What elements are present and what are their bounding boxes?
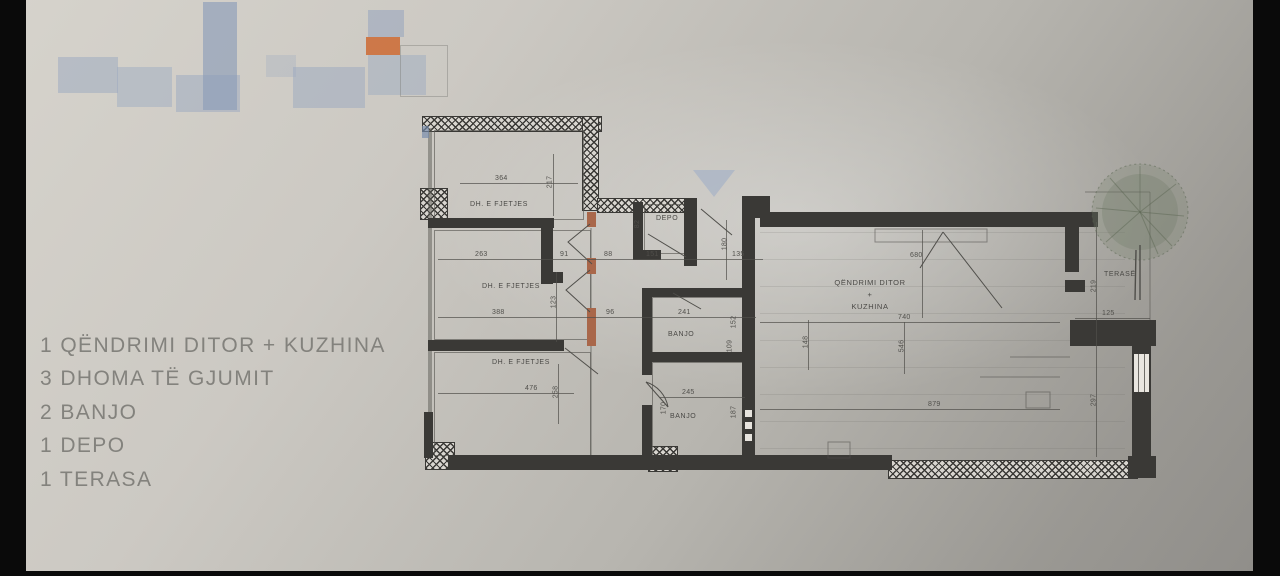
photo-right-edge bbox=[1253, 0, 1280, 576]
legend-item: 1 QËNDRIMI DITOR + KUZHINA bbox=[40, 329, 386, 362]
dim-label: 258 bbox=[552, 386, 560, 399]
room-label-bath1: BANJO bbox=[668, 330, 694, 339]
dimension-line bbox=[438, 259, 763, 260]
site-building-block bbox=[117, 67, 172, 107]
dim-label: 135 bbox=[732, 251, 745, 259]
room-label-bedroom1: DH. E FJETJES bbox=[470, 200, 528, 209]
dim-label: 546 bbox=[898, 340, 906, 353]
dim-label: 217 bbox=[546, 176, 554, 189]
dimension-line bbox=[760, 409, 1060, 410]
dim-label: 476 bbox=[525, 385, 538, 393]
dimension-line bbox=[460, 183, 578, 184]
site-building-block bbox=[293, 67, 365, 108]
dim-label: 82 bbox=[634, 220, 642, 228]
dim-label: 297 bbox=[1090, 394, 1098, 407]
room-label-depo: DEPO bbox=[656, 214, 678, 223]
site-highlighted-unit-orange bbox=[366, 37, 400, 55]
dim-label: 109 bbox=[726, 340, 734, 353]
dim-label: 123 bbox=[550, 296, 558, 309]
room-label-living: QËNDRIMI DITOR + KUZHINA bbox=[815, 277, 925, 313]
dim-label: 187 bbox=[730, 406, 738, 419]
site-tower-block bbox=[203, 2, 237, 110]
legend-item: 2 BANJO bbox=[40, 396, 386, 429]
doors-and-furniture-overlay bbox=[420, 112, 1168, 484]
site-building-block bbox=[266, 55, 296, 77]
dim-label: 148 bbox=[802, 336, 810, 349]
legend-item: 3 DHOMA TË GJUMIT bbox=[40, 362, 386, 395]
legend-item: 1 DEPO bbox=[40, 429, 386, 462]
dim-label: 170 bbox=[660, 402, 668, 415]
floor-plan: 364 217 263 91 88 151 135 82 180 388 123… bbox=[420, 112, 1168, 484]
dimension-line bbox=[1075, 318, 1150, 319]
room-label-bedroom2: DH. E FJETJES bbox=[482, 282, 540, 291]
dim-label: 263 bbox=[475, 251, 488, 259]
dim-label: 125 bbox=[1102, 310, 1115, 318]
dimension-line bbox=[660, 397, 745, 398]
dim-label: 680 bbox=[910, 252, 923, 260]
room-label-bath2: BANJO bbox=[670, 412, 696, 421]
dim-label: 388 bbox=[492, 309, 505, 317]
tree-icon bbox=[1080, 150, 1195, 305]
room-label-living-plus: + bbox=[815, 289, 925, 301]
dim-label: 151 bbox=[646, 251, 659, 259]
room-label-living-line1: QËNDRIMI DITOR bbox=[815, 277, 925, 289]
dim-label: 152 bbox=[730, 316, 738, 329]
dim-label: 91 bbox=[560, 251, 568, 259]
dim-label: 88 bbox=[604, 251, 612, 259]
site-plan bbox=[0, 0, 460, 130]
dimension-line bbox=[760, 322, 1060, 323]
dimension-line bbox=[438, 317, 756, 318]
dim-label: 241 bbox=[678, 309, 691, 317]
dim-label: 245 bbox=[682, 389, 695, 397]
dim-label: 740 bbox=[898, 314, 911, 322]
photo-of-floor-plan-sheet: { "legend": { "items": [ "1 QËNDRIMI DIT… bbox=[0, 0, 1280, 576]
room-label-living-line2: KUZHINA bbox=[815, 301, 925, 313]
dim-label: 364 bbox=[495, 175, 508, 183]
site-building-block bbox=[58, 57, 118, 93]
legend-item: 1 TERASA bbox=[40, 463, 386, 496]
site-building-block bbox=[368, 10, 404, 37]
photo-bottom-edge bbox=[0, 571, 1280, 576]
room-label-bedroom3: DH. E FJETJES bbox=[492, 358, 550, 367]
dim-label: 180 bbox=[721, 238, 729, 251]
room-legend: 1 QËNDRIMI DITOR + KUZHINA 3 DHOMA TË GJ… bbox=[40, 329, 386, 496]
dim-label: 879 bbox=[928, 401, 941, 409]
site-building-outline bbox=[400, 45, 448, 97]
dim-label: 96 bbox=[606, 309, 614, 317]
